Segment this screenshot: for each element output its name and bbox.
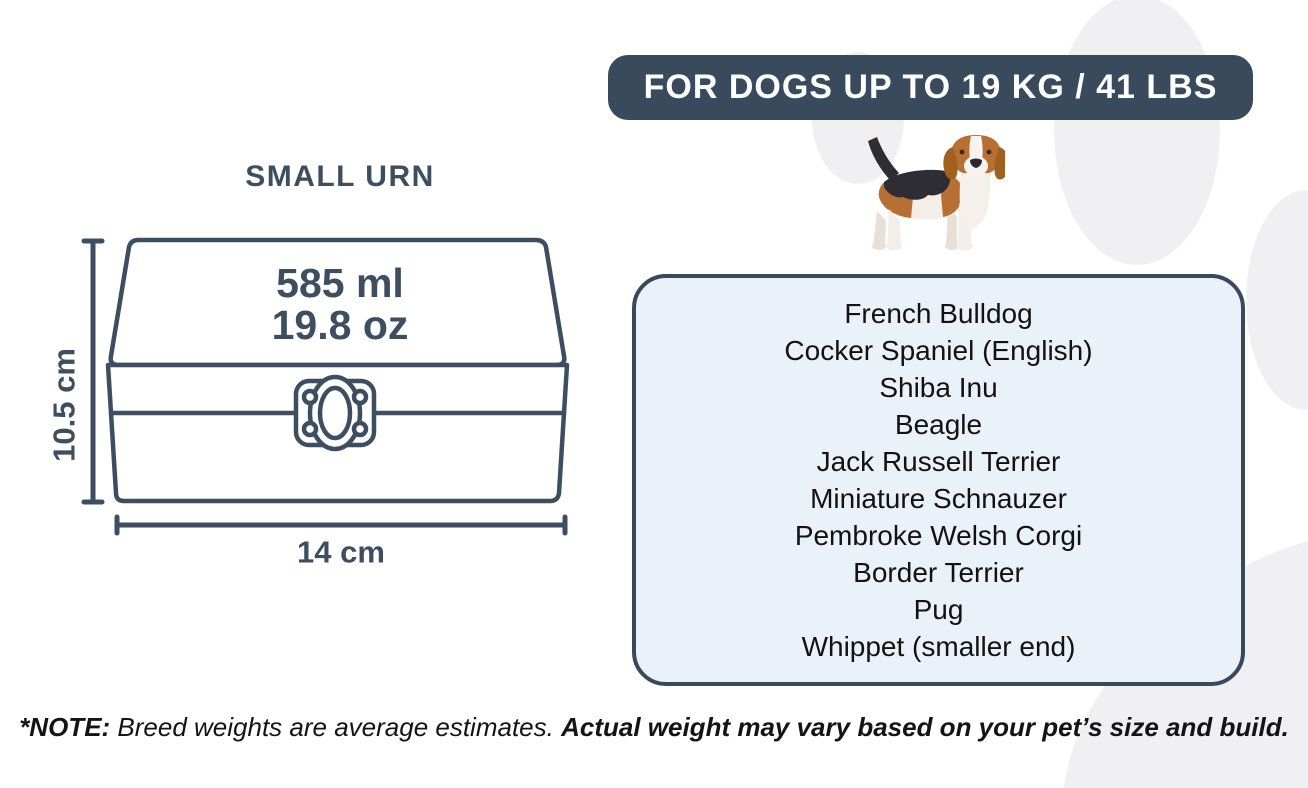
urn-volume-oz: 19.8 oz	[272, 302, 409, 348]
beagle-paw	[886, 242, 902, 251]
urn-width-label: 14 cm	[297, 535, 385, 570]
beagle-leg	[873, 211, 886, 247]
breed-list-item: Pembroke Welsh Corgi	[795, 517, 1082, 554]
breed-list-item: Beagle	[895, 406, 982, 443]
width-dimension-line	[117, 517, 565, 533]
urn-size-title: SMALL URN	[40, 160, 640, 194]
breed-list-item: Jack Russell Terrier	[817, 443, 1061, 480]
height-dimension-line	[84, 241, 102, 502]
footnote-label: *NOTE:	[19, 712, 110, 742]
breed-list-item: Whippet (smaller end)	[802, 628, 1076, 665]
beagle-tail	[868, 137, 899, 181]
breed-list-panel: French Bulldog Cocker Spaniel (English) …	[632, 274, 1245, 686]
beagle-paw	[957, 242, 973, 251]
beagle-eye	[987, 150, 992, 155]
footnote-emphasis: Actual weight may vary based on your pet…	[561, 712, 1289, 742]
footnote-text: Breed weights are average estimates.	[110, 712, 561, 742]
paw-toe	[1054, 0, 1220, 265]
breed-list-item: Border Terrier	[853, 554, 1024, 591]
urn-dimension-diagram: 10.5 cm 585 ml 19.8 oz 14 cm	[40, 230, 600, 575]
beagle-paw	[872, 242, 886, 250]
breed-list-item: French Bulldog	[844, 295, 1032, 332]
breed-list-item: Miniature Schnauzer	[810, 480, 1067, 517]
breed-list-item: Pug	[914, 591, 964, 628]
capacity-badge-label: FOR DOGS UP TO 19 KG / 41 LBS	[644, 68, 1218, 107]
capacity-badge: FOR DOGS UP TO 19 KG / 41 LBS	[608, 55, 1253, 120]
urn-latch-icon	[296, 377, 374, 449]
infographic: FOR DOGS UP TO 19 KG / 41 LBS SMALL URN …	[0, 0, 1308, 788]
beagle-eye	[960, 150, 965, 155]
urn-volume-ml: 585 ml	[276, 260, 404, 306]
paw-toe	[1246, 190, 1308, 410]
breed-list-item: Cocker Spaniel (English)	[784, 332, 1092, 369]
beagle-chest	[960, 171, 991, 229]
urn-height-label: 10.5 cm	[47, 348, 82, 462]
beagle-icon	[855, 133, 1005, 257]
beagle-paw	[945, 242, 959, 250]
breed-list-item: Shiba Inu	[879, 369, 997, 406]
footnote: *NOTE: Breed weights are average estimat…	[0, 712, 1308, 743]
